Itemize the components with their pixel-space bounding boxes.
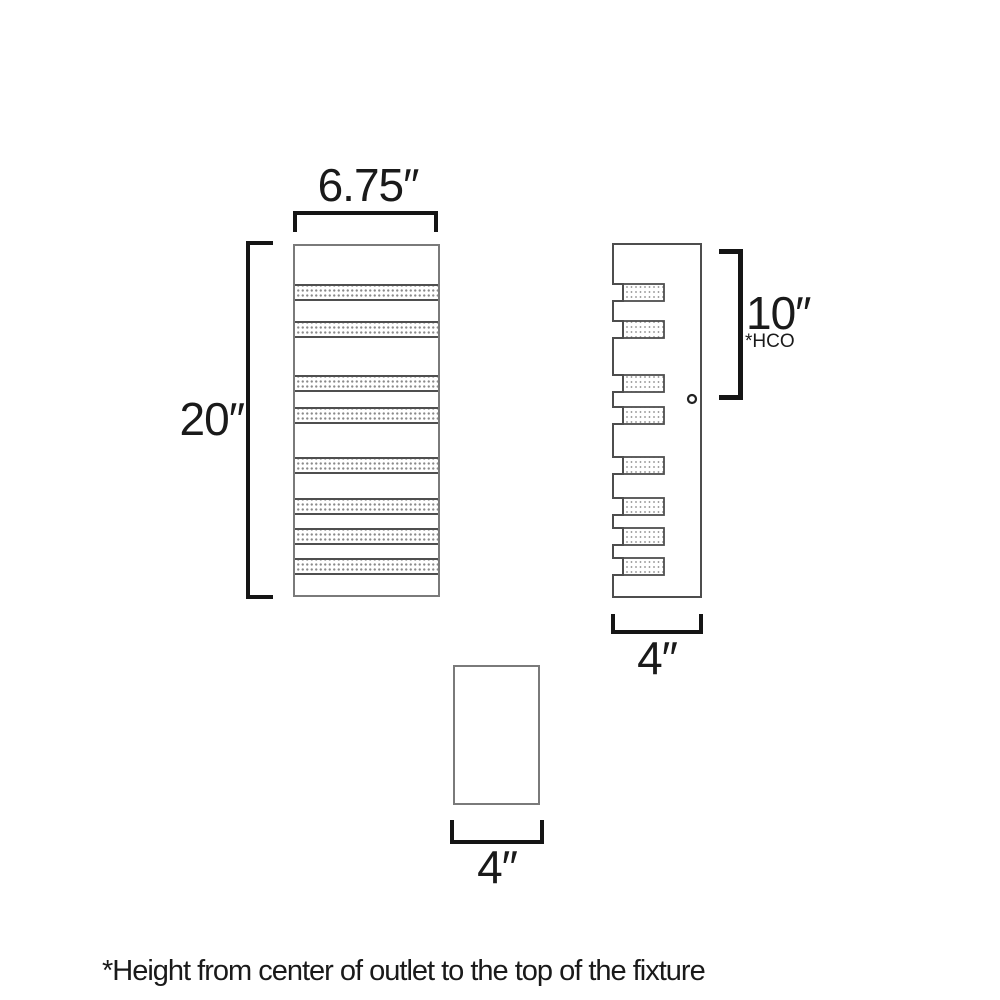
hco-note-label: *HCO xyxy=(745,332,795,351)
footnote: *Height from center of outlet to the top… xyxy=(102,955,705,988)
dimension-diagram: 6.75″ 20″ 10″ *HCO 4″ 4″ xyxy=(0,0,1000,1000)
bottom-width-bracket-left-tick xyxy=(450,820,454,844)
side-depth-label: 4″ xyxy=(608,635,706,681)
hco-bracket-bottom-tick xyxy=(719,395,743,400)
bottom-view-rect xyxy=(453,665,540,805)
side-diffuser-band xyxy=(623,375,664,392)
side-diffuser-band xyxy=(623,558,664,575)
hco-bracket-top-tick xyxy=(719,249,743,254)
side-diffuser-band xyxy=(623,321,664,338)
side-diffuser-band xyxy=(623,407,664,424)
hco-label: 10″ xyxy=(746,290,810,336)
side-diffuser-band xyxy=(623,457,664,474)
side-depth-bracket-right-tick xyxy=(699,614,703,634)
side-diffuser-band xyxy=(623,498,664,515)
outlet-center-mark xyxy=(688,395,696,403)
hco-bracket-line xyxy=(738,249,743,400)
bottom-width-bracket-right-tick xyxy=(540,820,544,844)
bottom-width-label: 4″ xyxy=(448,844,546,890)
side-diffuser-band xyxy=(623,284,664,301)
side-depth-bracket-left-tick xyxy=(611,614,615,634)
side-diffuser-band xyxy=(623,528,664,545)
